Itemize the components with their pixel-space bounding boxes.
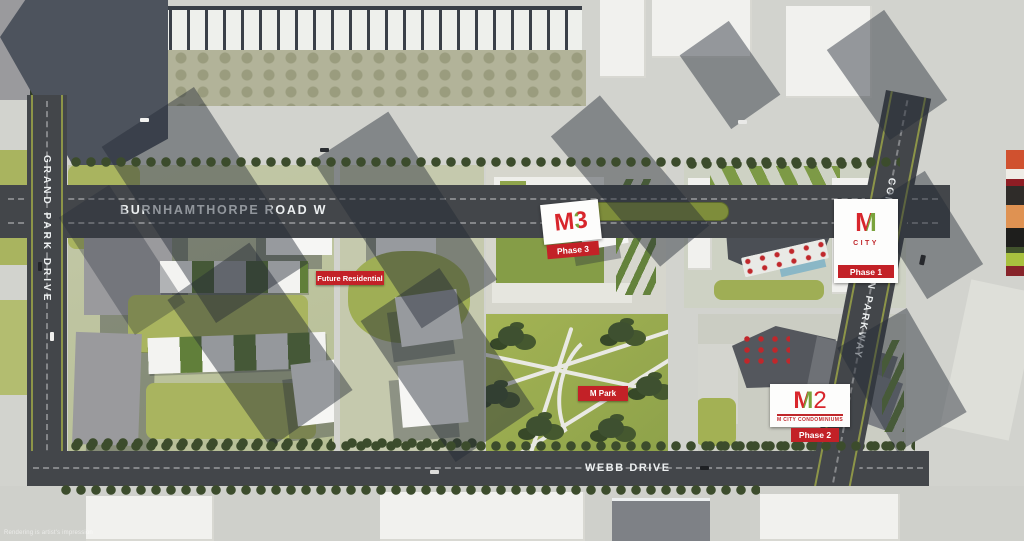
- label-future-residential: Future Residential: [316, 271, 384, 285]
- m2-logo: M 2: [793, 389, 826, 413]
- lawn: [698, 398, 736, 446]
- building: [612, 498, 710, 541]
- m2-logo-card: M 2 M CITY CONDOMINIUMS: [770, 384, 850, 427]
- car: [38, 262, 42, 271]
- mcity-logo-m: M: [855, 207, 877, 238]
- building: [600, 0, 646, 78]
- lane-line: [8, 222, 938, 224]
- tree-grove: [598, 418, 624, 438]
- building: [86, 496, 214, 541]
- m3-logo-card: M 3: [540, 199, 602, 245]
- umbrella-dots: [742, 334, 790, 364]
- street-tree-row: [70, 440, 915, 452]
- building: [760, 494, 900, 541]
- car: [430, 470, 439, 474]
- m3-logo: M 3: [553, 208, 589, 235]
- m3-logo-m: M: [553, 210, 575, 236]
- legend-swatch: [1006, 150, 1024, 169]
- mcity-logo-card: M CITY Phase 1: [834, 199, 898, 283]
- legend-swatch: [1006, 205, 1024, 228]
- legend-swatch: [1006, 169, 1024, 179]
- car: [320, 148, 329, 152]
- m2-logo-m: M: [793, 389, 813, 413]
- podium: [492, 283, 632, 303]
- tree-grove: [636, 376, 662, 396]
- phase-1-banner: Phase 1: [838, 265, 894, 278]
- disclaimer-watermark: Rendering is artist's impression: [4, 530, 93, 536]
- car: [700, 466, 709, 470]
- lawn: [714, 280, 824, 300]
- tree-grove: [498, 326, 524, 346]
- building: [380, 492, 585, 541]
- road-label-grand-park-drive: GRAND PARK DRIVE: [41, 155, 52, 303]
- legend-swatch: [1006, 186, 1024, 205]
- car: [50, 332, 54, 341]
- street-tree-row: [60, 484, 760, 495]
- car: [738, 120, 747, 124]
- street-tree-row: [70, 156, 900, 168]
- label-m-park: M Park: [578, 386, 628, 401]
- car: [140, 118, 149, 122]
- legend-swatch: [1006, 253, 1024, 266]
- building: [72, 332, 142, 446]
- m3-logo-3: 3: [573, 208, 589, 233]
- road-label-webb-drive: WEBB DRIVE: [585, 462, 671, 474]
- m2-logo-subtitle: M CITY CONDOMINIUMS: [777, 414, 843, 423]
- tree-grove: [526, 416, 552, 436]
- m2-logo-2: 2: [813, 389, 826, 413]
- legend-color-strip: [1006, 150, 1024, 276]
- phase-2-banner: Phase 2: [791, 428, 839, 442]
- lawn: [0, 300, 28, 395]
- legend-swatch: [1006, 228, 1024, 247]
- site-plan-map: BURNHAMTHORPE ROAD W GRAND PARK DRIVE WE…: [0, 0, 1024, 541]
- tree-grove: [608, 322, 634, 342]
- legend-swatch: [1006, 266, 1024, 276]
- lane-line: [33, 467, 923, 469]
- mcity-logo-city: CITY: [853, 240, 879, 247]
- road-webb-drive: WEBB DRIVE: [27, 451, 929, 486]
